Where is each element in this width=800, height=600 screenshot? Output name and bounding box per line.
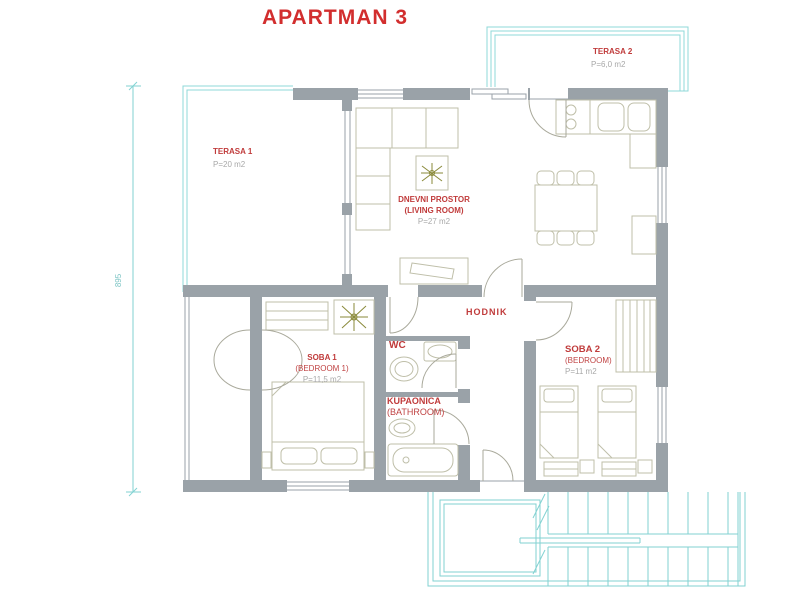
bedroom1-area: P=11,5 m2 <box>276 374 368 385</box>
bathroom-fixtures <box>388 419 458 476</box>
bedroom1-furniture <box>262 300 374 470</box>
wc-label: WC <box>389 340 406 351</box>
bedroom2-area: P=11 m2 <box>565 366 612 377</box>
bedroom2-furniture <box>540 300 656 476</box>
floorplan-page: APARTMAN 3 TERASA 1 P=20 m2 TERASA 2 P=6… <box>0 0 800 600</box>
dimension-value: 895 <box>114 274 123 287</box>
hallway-label: HODNIK <box>466 307 508 317</box>
bathroom-label: KUPAONICA (BATHROOM) <box>387 396 444 418</box>
terrace-2-outline <box>487 27 688 91</box>
bedroom2-label: SOBA 2 (BEDROOM) P=11 m2 <box>565 344 612 377</box>
terrace-1-outline <box>183 86 293 292</box>
floorplan-drawing <box>0 0 800 600</box>
terasa1-area: P=20 m2 <box>213 160 245 169</box>
terasa2-area: P=6,0 m2 <box>591 60 625 69</box>
bathroom-name: KUPAONICA <box>387 396 444 407</box>
bedroom1-label: SOBA 1 (BEDROOM 1) P=11,5 m2 <box>276 352 368 385</box>
living-room-name: DNEVNI PROSTOR <box>384 194 484 205</box>
page-title: APARTMAN 3 <box>230 6 440 30</box>
living-room-furniture <box>356 100 656 284</box>
living-room-area: P=27 m2 <box>384 216 484 227</box>
bathroom-name-en: (BATHROOM) <box>387 407 444 418</box>
bedroom1-name: SOBA 1 <box>276 352 368 363</box>
bedroom2-name: SOBA 2 <box>565 344 612 355</box>
exterior-stairs <box>428 492 745 586</box>
bedroom2-name-en: (BEDROOM) <box>565 355 612 366</box>
living-room-label: DNEVNI PROSTOR (LIVING ROOM) P=27 m2 <box>384 194 484 227</box>
dimension-line <box>126 82 141 496</box>
bedroom1-name-en: (BEDROOM 1) <box>276 363 368 374</box>
terasa1-label: TERASA 1 <box>213 147 252 156</box>
walls <box>183 88 668 492</box>
terasa2-label: TERASA 2 <box>593 47 632 56</box>
plant-icon <box>421 163 443 184</box>
living-room-name-en: (LIVING ROOM) <box>384 205 484 216</box>
plant-icon-2 <box>340 303 368 331</box>
